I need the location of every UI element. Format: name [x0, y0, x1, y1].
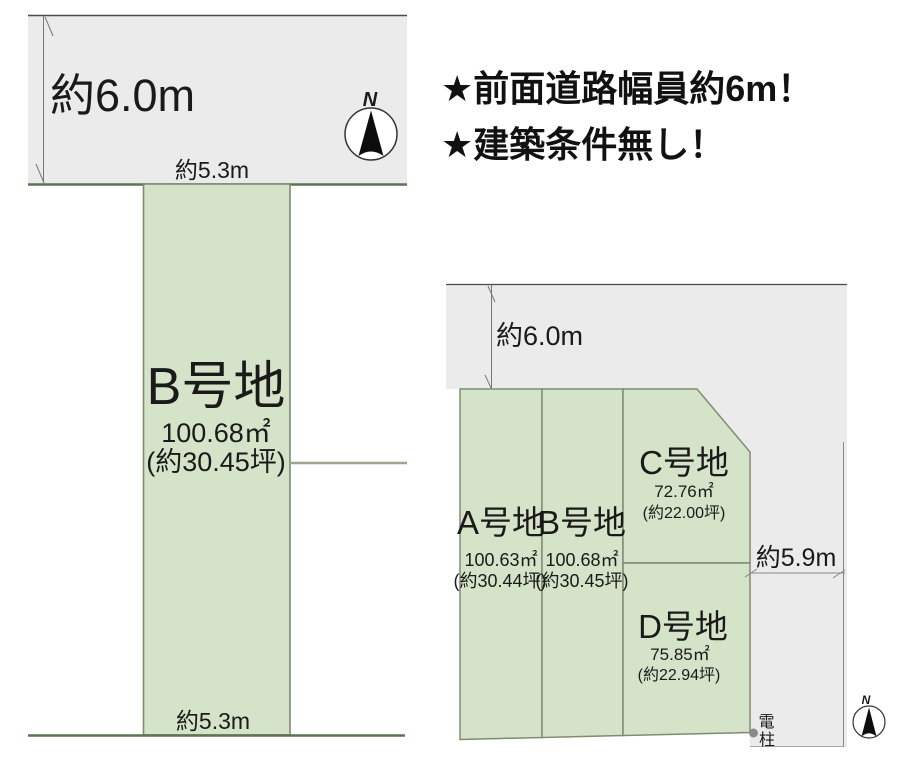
plot-a-name: A号地	[457, 504, 545, 541]
utility-pole-label-char1: 電	[758, 714, 774, 731]
compass-north-label: N	[363, 89, 378, 111]
plot-c-area-tsubo: (約22.00坪)	[643, 504, 726, 522]
frontage-top-label: 約5.3m	[175, 157, 249, 183]
frontage-bottom-label: 約5.3m	[176, 708, 250, 734]
road-width-label: 約6.0m	[496, 321, 583, 351]
plot-a-area-sqm: 100.63㎡	[464, 549, 537, 570]
plot-a-area-tsubo: (約30.44坪)	[453, 571, 546, 591]
plot-d-area-sqm: 75.85㎡	[650, 645, 710, 664]
plot-b-name: B号地	[538, 504, 626, 541]
headline-no-building-conditions: ★建築条件無し！	[441, 117, 813, 173]
headline-road-width: ★前面道路幅員約6m！	[441, 61, 813, 117]
plot-d-area-tsubo: (約22.94坪)	[638, 666, 721, 684]
compass: N	[853, 693, 885, 738]
headline-block: ★前面道路幅員約6m！ ★建築条件無し！	[441, 61, 813, 173]
plot-b-area-sqm: 100.68㎡	[161, 418, 271, 448]
land-plot-flyer: 約6.0m 約5.3m N B号地 100.68㎡ (約30.45坪) 約5.3…	[0, 0, 904, 768]
utility-pole-label-char2: 柱	[759, 731, 775, 749]
road-width-label: 約6.0m	[50, 70, 195, 121]
compass-north-label: N	[862, 693, 871, 707]
plot-b-area-tsubo: (約30.45坪)	[146, 447, 286, 477]
detail-plan-drawing: 約6.0m 約5.3m N B号地 100.68㎡ (約30.45坪) 約5.3…	[0, 0, 452, 768]
plot-b-area-sqm: 100.68㎡	[545, 549, 618, 570]
utility-pole-dot-icon	[749, 729, 758, 738]
overview-plan-drawing: 約6.0m A号地 100.63㎡ (約30.44坪) B号地 100.68㎡ …	[440, 270, 904, 768]
plot-b-name: B号地	[147, 358, 286, 416]
plot-d-name: D号地	[638, 608, 728, 645]
plot-b-area-tsubo: (約30.45坪)	[535, 571, 628, 591]
plot-c-name: C号地	[639, 444, 729, 481]
side-road-width-label: 約5.9m	[756, 544, 837, 572]
plot-c-area-sqm: 72.76㎡	[654, 482, 714, 501]
